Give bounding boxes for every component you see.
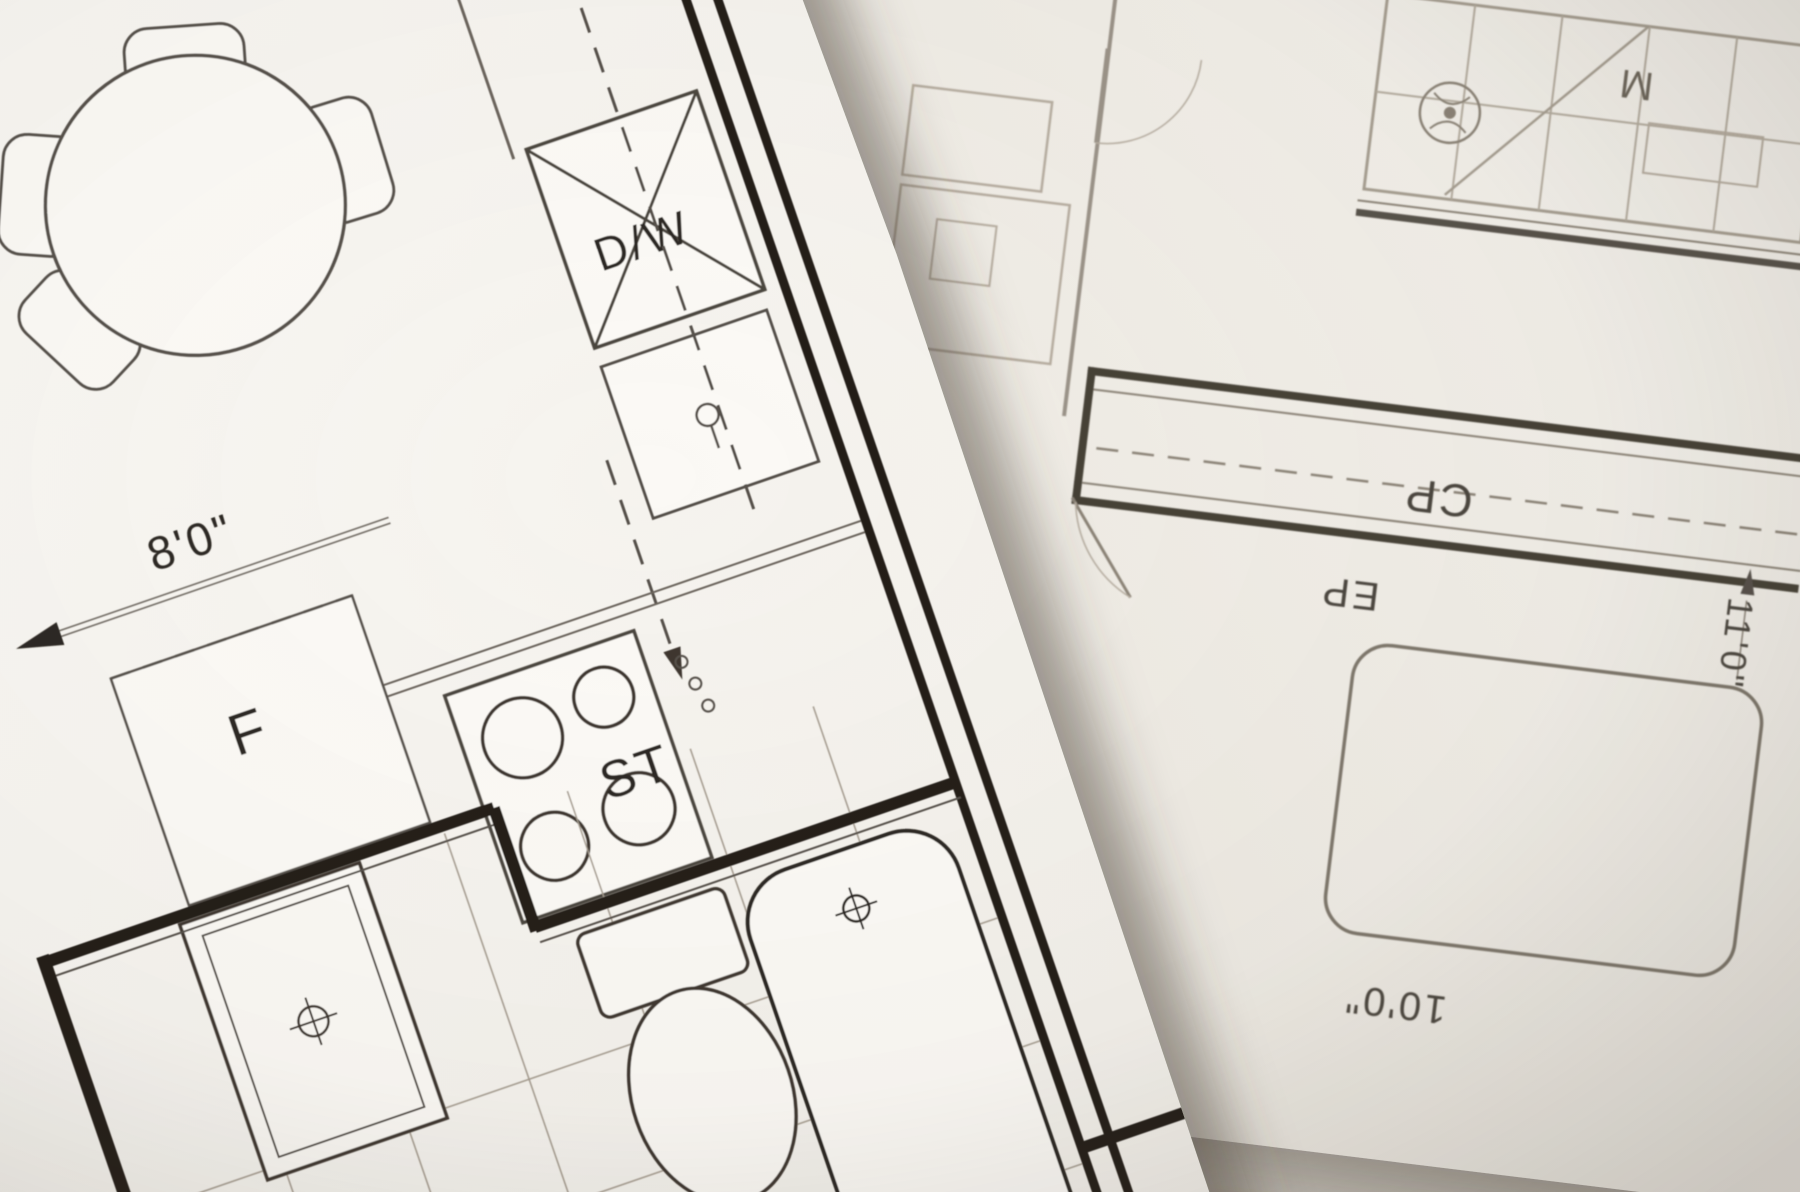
blueprint-canvas: CP EP [0,0,1800,1192]
blueprint-photo: CP EP [0,0,1800,1192]
vignette-overlay [0,0,1800,1192]
